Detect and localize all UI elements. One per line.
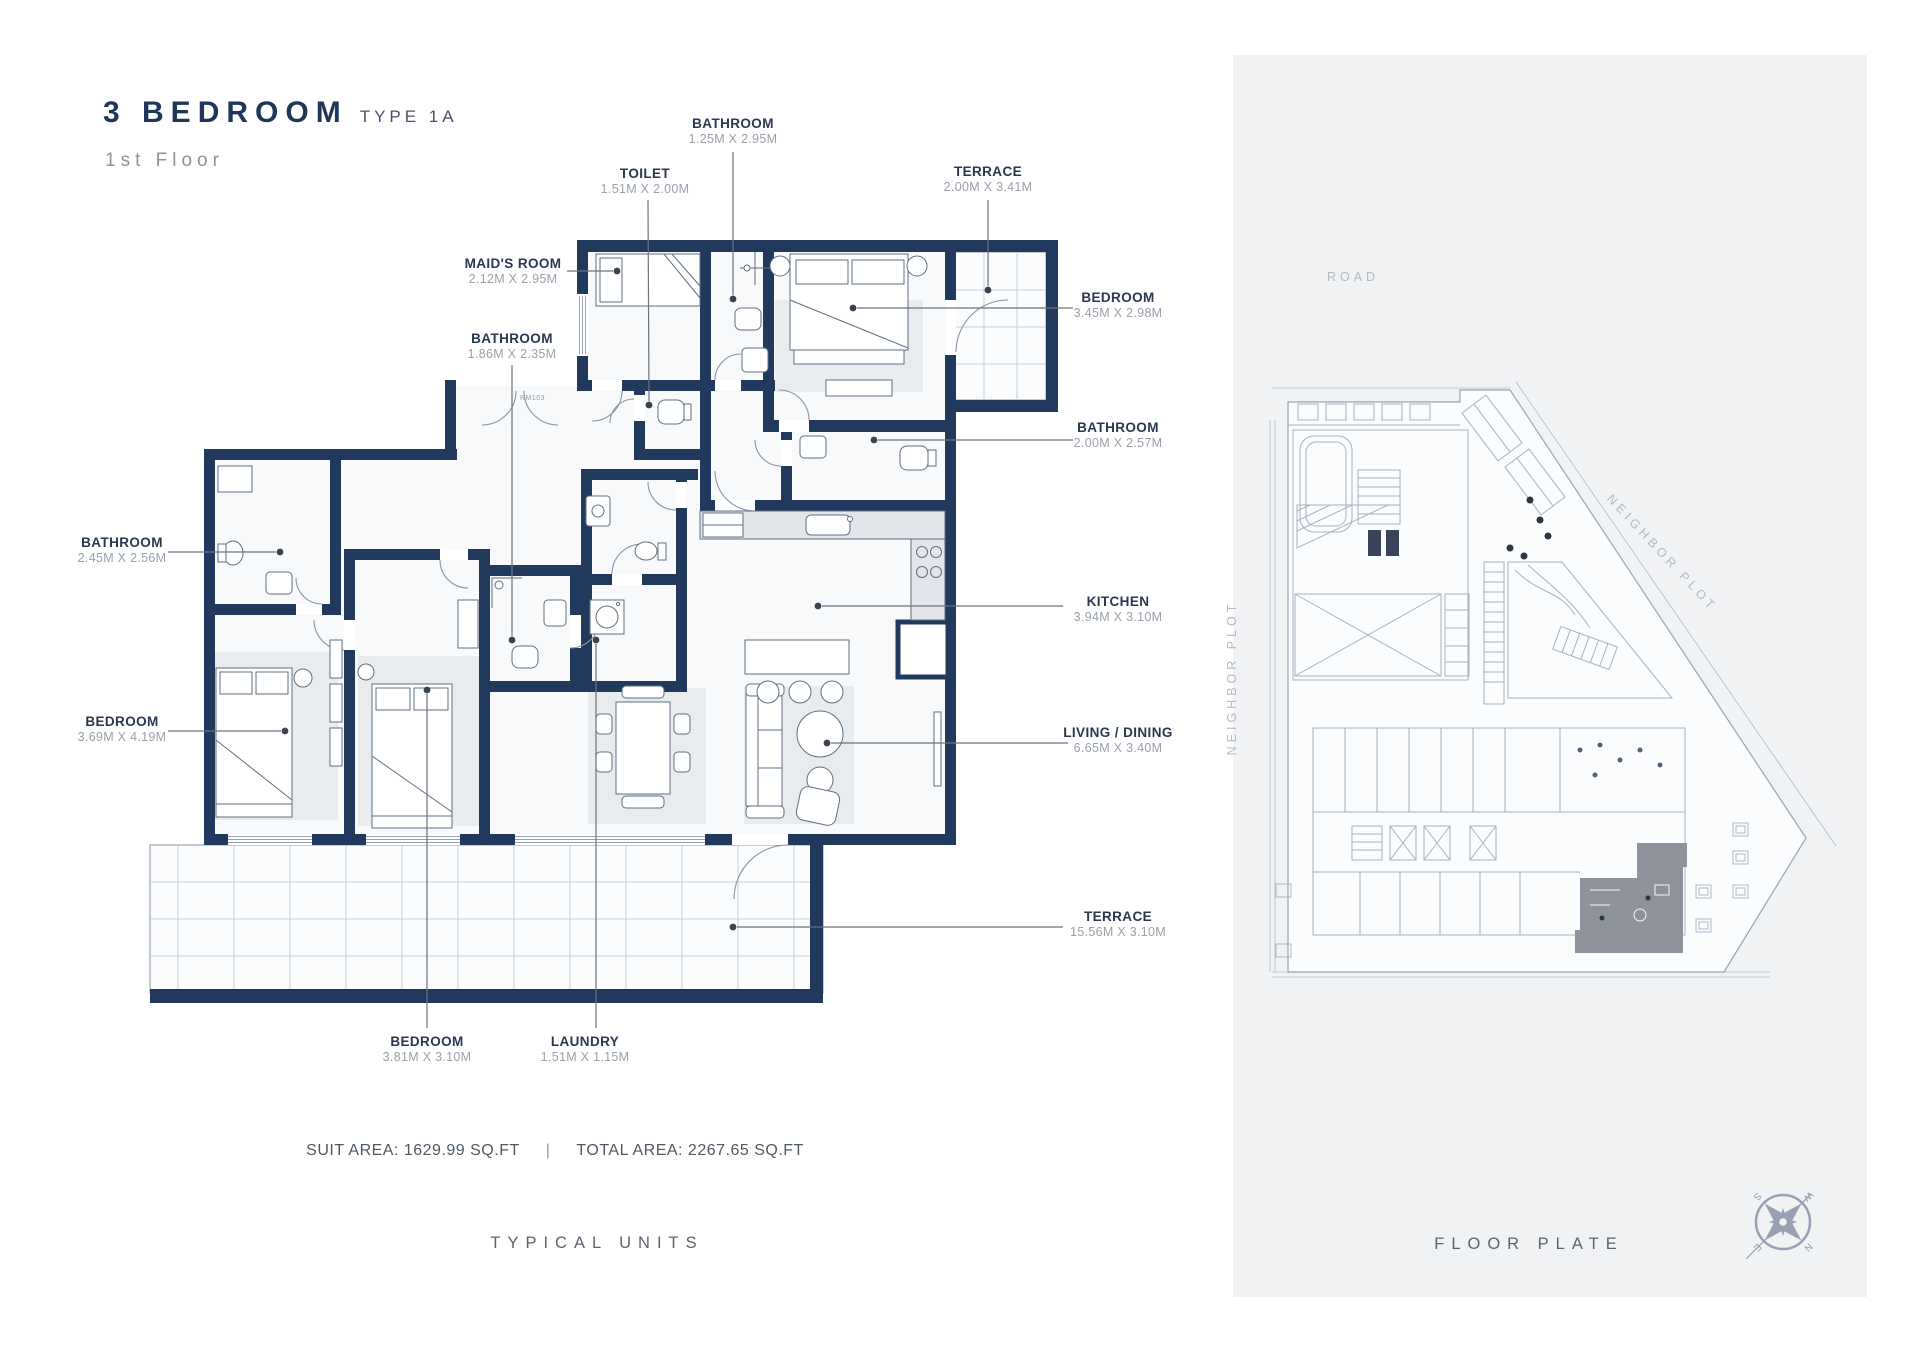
room-name: LIVING / DINING xyxy=(1063,725,1173,740)
room-dims: 3.45M X 2.98M xyxy=(1074,306,1163,320)
room-dims: 2.45M X 2.56M xyxy=(78,551,167,565)
label-terrace-main: TERRACE 15.56M X 3.10M xyxy=(1070,909,1166,939)
label-bedroom-3: BEDROOM 3.81M X 3.10M xyxy=(383,1034,472,1064)
room-dims: 15.56M X 3.10M xyxy=(1070,925,1166,939)
room-dims: 3.81M X 3.10M xyxy=(383,1050,472,1064)
road-label: ROAD xyxy=(1327,270,1379,284)
service-shaft xyxy=(898,622,948,677)
terrace-bedroom xyxy=(951,252,1046,400)
neighbor-plot-label-left: NEIGHBOR PLOT xyxy=(1225,601,1239,756)
label-kitchen: KITCHEN 3.94M X 3.10M xyxy=(1074,594,1163,624)
unit-type-title: 3 BEDROOM xyxy=(103,96,348,129)
compass-s: S xyxy=(1751,1190,1763,1202)
room-name: TOILET xyxy=(601,166,690,181)
floor-subtitle: 1st Floor xyxy=(105,150,224,172)
label-terrace-small: TERRACE 2.00M X 3.41M xyxy=(944,164,1033,194)
floorplan-sheet: N E S W 3 BEDROOMTYPE 1A 1st Floor BATHR… xyxy=(0,0,1920,1358)
label-toilet: TOILET 1.51M X 2.00M xyxy=(601,166,690,196)
area-stats: SUIT AREA: 1629.99 SQ.FT|TOTAL AREA: 226… xyxy=(255,1142,855,1160)
floor-plate-drawing xyxy=(1270,382,1836,977)
compass-n: N xyxy=(1802,1241,1815,1254)
label-laundry: LAUNDRY 1.51M X 1.15M xyxy=(541,1034,630,1064)
room-name: MAID'S ROOM xyxy=(465,256,562,271)
room-dims: 3.69M X 4.19M xyxy=(78,730,167,744)
room-dims: 1.51M X 1.15M xyxy=(541,1050,630,1064)
stats-separator: | xyxy=(546,1142,551,1159)
room-name: TERRACE xyxy=(944,164,1033,179)
room-name: BEDROOM xyxy=(1074,290,1163,305)
room-dims: 3.94M X 3.10M xyxy=(1074,610,1163,624)
room-name: BATHROOM xyxy=(689,116,778,131)
label-bathroom-2: BATHROOM 1.86M X 2.35M xyxy=(468,331,557,361)
room-name: BATHROOM xyxy=(1074,420,1163,435)
label-bathroom-1: BATHROOM 1.25M X 2.95M xyxy=(689,116,778,146)
label-bathroom-4: BATHROOM 2.45M X 2.56M xyxy=(78,535,167,565)
label-bedroom-2: BEDROOM 3.69M X 4.19M xyxy=(78,714,167,744)
unit-type-variant: TYPE 1A xyxy=(360,107,458,126)
suit-area: SUIT AREA: 1629.99 SQ.FT xyxy=(306,1142,520,1159)
room-name: BATHROOM xyxy=(78,535,167,550)
room-name: TERRACE xyxy=(1070,909,1166,924)
floor-plate-caption: FLOOR PLATE xyxy=(1434,1235,1623,1254)
label-bathroom-3: BATHROOM 2.00M X 2.57M xyxy=(1074,420,1163,450)
room-dims: 2.00M X 3.41M xyxy=(944,180,1033,194)
label-bedroom-1: BEDROOM 3.45M X 2.98M xyxy=(1074,290,1163,320)
label-maids-room: MAID'S ROOM 2.12M X 2.95M xyxy=(465,256,562,286)
total-area: TOTAL AREA: 2267.65 SQ.FT xyxy=(576,1142,803,1159)
room-dims: 2.00M X 2.57M xyxy=(1074,436,1163,450)
page-title: 3 BEDROOMTYPE 1A xyxy=(103,96,458,130)
compass-rose: N E S W xyxy=(1717,1164,1841,1288)
room-dims: 1.25M X 2.95M xyxy=(689,132,778,146)
room-name: BEDROOM xyxy=(78,714,167,729)
room-dims: 1.51M X 2.00M xyxy=(601,182,690,196)
room-number-note: RM103 xyxy=(520,395,545,402)
label-living-dining: LIVING / DINING 6.65M X 3.40M xyxy=(1063,725,1173,755)
typical-units-caption: TYPICAL UNITS xyxy=(490,1234,703,1253)
room-dims: 1.86M X 2.35M xyxy=(468,347,557,361)
room-name: LAUNDRY xyxy=(541,1034,630,1049)
room-name: KITCHEN xyxy=(1074,594,1163,609)
room-dims: 2.12M X 2.95M xyxy=(465,272,562,286)
room-name: BEDROOM xyxy=(383,1034,472,1049)
terrace-main xyxy=(150,845,823,1003)
room-name: BATHROOM xyxy=(468,331,557,346)
room-dims: 6.65M X 3.40M xyxy=(1063,741,1173,755)
